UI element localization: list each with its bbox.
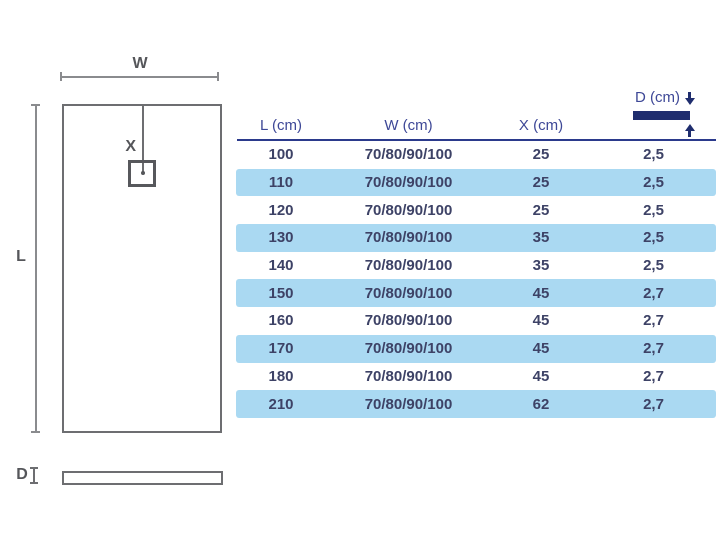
d-value: 2,7 <box>591 396 716 413</box>
width-dimension-tick-right <box>217 72 219 81</box>
length-dimension-tick-top <box>31 104 40 106</box>
w-value: 70/80/90/100 <box>326 229 491 246</box>
d-value: 2,7 <box>591 340 716 357</box>
w-value: 70/80/90/100 <box>326 146 491 163</box>
d-value: 2,5 <box>591 229 716 246</box>
table-row: 210 70/80/90/100 62 2,7 <box>236 390 716 418</box>
column-header-w: W (cm) <box>326 117 491 134</box>
l-value: 210 <box>236 396 326 413</box>
l-value: 180 <box>236 368 326 385</box>
x-value: 45 <box>491 312 591 329</box>
w-value: 70/80/90/100 <box>326 312 491 329</box>
table-header-row: L (cm) W (cm) X (cm) <box>236 112 716 138</box>
l-value: 140 <box>236 257 326 274</box>
arrow-down-icon <box>684 92 695 105</box>
w-value: 70/80/90/100 <box>326 202 491 219</box>
length-dimension-label: L <box>13 249 29 265</box>
drain-offset-label: X <box>108 139 136 155</box>
width-dimension-line <box>60 76 219 78</box>
w-value: 70/80/90/100 <box>326 340 491 357</box>
table-row: 120 70/80/90/100 25 2,5 <box>236 196 716 224</box>
depth-dimension-ibeam-top-serif <box>30 467 38 469</box>
d-value: 2,7 <box>591 285 716 302</box>
w-value: 70/80/90/100 <box>326 257 491 274</box>
dimension-spec-sheet: W L X D D (cm) L (cm) W (cm) X (cm) <box>0 0 720 540</box>
table-row: 110 70/80/90/100 25 2,5 <box>236 169 716 197</box>
table-row: 150 70/80/90/100 45 2,7 <box>236 279 716 307</box>
l-value: 150 <box>236 285 326 302</box>
x-value: 25 <box>491 146 591 163</box>
l-value: 110 <box>236 174 326 191</box>
column-header-l: L (cm) <box>236 117 326 134</box>
w-value: 70/80/90/100 <box>326 285 491 302</box>
x-value: 25 <box>491 202 591 219</box>
depth-dimension-ibeam-bottom-serif <box>30 482 38 484</box>
table-body: 100 70/80/90/100 25 2,5 110 70/80/90/100… <box>236 141 716 418</box>
column-header-x: X (cm) <box>491 117 591 134</box>
d-value: 2,5 <box>591 174 716 191</box>
w-value: 70/80/90/100 <box>326 368 491 385</box>
drain-center-dot <box>141 171 145 175</box>
x-value: 35 <box>491 229 591 246</box>
d-value: 2,7 <box>591 312 716 329</box>
x-value: 45 <box>491 340 591 357</box>
column-header-d: D (cm) <box>616 90 680 105</box>
d-value: 2,5 <box>591 146 716 163</box>
table-row: 160 70/80/90/100 45 2,7 <box>236 307 716 335</box>
x-value: 45 <box>491 368 591 385</box>
x-value: 25 <box>491 174 591 191</box>
d-value: 2,5 <box>591 202 716 219</box>
length-dimension-tick-bottom <box>31 431 40 433</box>
table-row: 180 70/80/90/100 45 2,7 <box>236 363 716 391</box>
width-dimension-label: W <box>60 56 220 72</box>
width-dimension-tick-left <box>60 72 62 81</box>
l-value: 160 <box>236 312 326 329</box>
w-value: 70/80/90/100 <box>326 174 491 191</box>
d-value: 2,7 <box>591 368 716 385</box>
x-value: 62 <box>491 396 591 413</box>
x-value: 35 <box>491 257 591 274</box>
l-value: 130 <box>236 229 326 246</box>
table-row: 170 70/80/90/100 45 2,7 <box>236 335 716 363</box>
l-value: 100 <box>236 146 326 163</box>
depth-dimension-label: D <box>14 467 30 483</box>
table-row: 140 70/80/90/100 35 2,5 <box>236 252 716 280</box>
d-value: 2,5 <box>591 257 716 274</box>
length-dimension-line <box>35 104 37 433</box>
w-value: 70/80/90/100 <box>326 396 491 413</box>
x-value: 45 <box>491 285 591 302</box>
tray-side-view-outline <box>62 471 223 485</box>
l-value: 170 <box>236 340 326 357</box>
table-row: 130 70/80/90/100 35 2,5 <box>236 224 716 252</box>
table-row: 100 70/80/90/100 25 2,5 <box>236 141 716 169</box>
l-value: 120 <box>236 202 326 219</box>
